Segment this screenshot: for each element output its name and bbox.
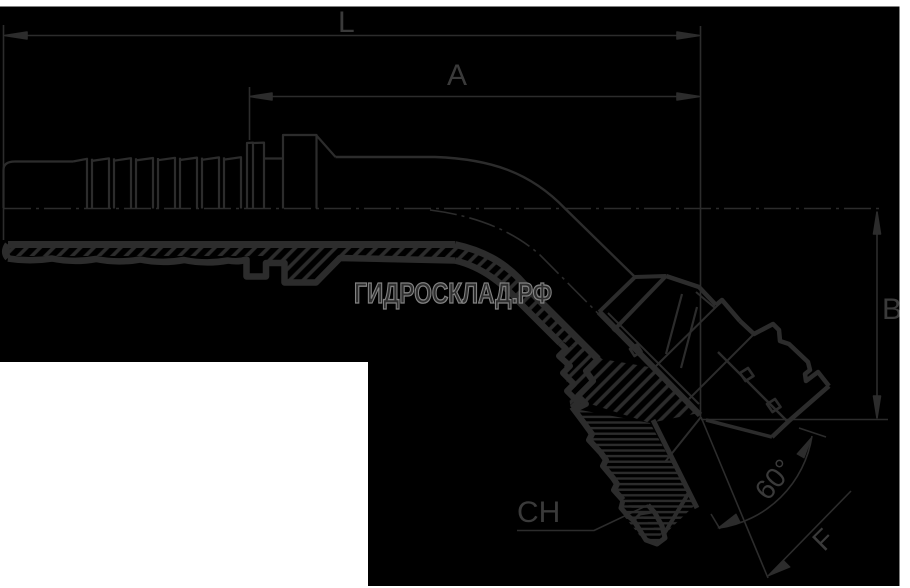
svg-text:L: L — [338, 6, 355, 39]
svg-text:B: B — [882, 293, 902, 326]
svg-text:A: A — [447, 59, 467, 92]
svg-text:CH: CH — [517, 496, 560, 529]
svg-text:ГИДРОСКЛАД.РФ: ГИДРОСКЛАД.РФ — [354, 278, 552, 310]
